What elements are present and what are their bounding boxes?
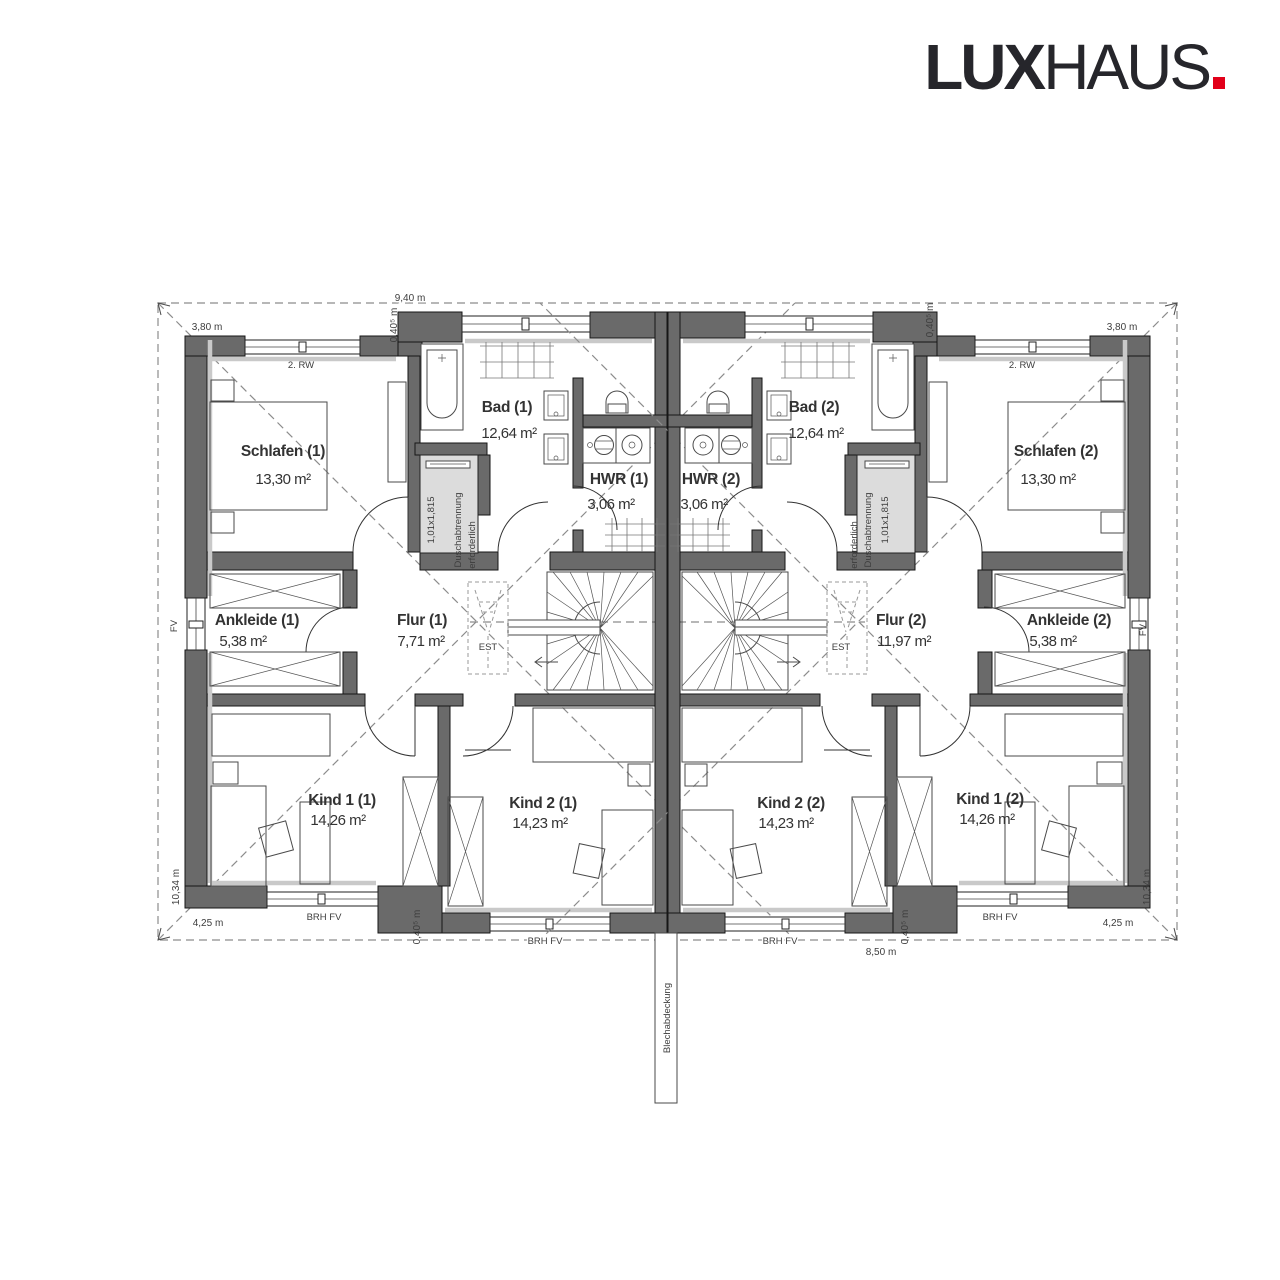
floor-plan-page: LUXHAUS [0, 0, 1280, 1280]
bath-tiles-icon [480, 342, 554, 378]
room-area-schlafen-2: 13,30 m² [1020, 471, 1076, 488]
note-est-left: EST [479, 642, 498, 653]
room-area-schlafen-1: 13,30 m² [255, 471, 311, 488]
room-area-kind-1-2: 14,26 m² [959, 811, 1015, 828]
room-area-hwr-1: 3,06 m² [587, 496, 635, 513]
room-name-bad-2: Bad (2) [789, 399, 840, 416]
note-fv-left: FV [169, 619, 180, 632]
shower-note-2-right: erforderlich [849, 521, 860, 569]
sink-icon [544, 391, 568, 464]
note-fv-right: FV [1138, 623, 1149, 636]
room-name-hwr-1: HWR (1) [590, 471, 648, 488]
room-area-kind-2-2: 14,23 m² [758, 815, 814, 832]
dim-side-depth-left: 10,34 m [171, 869, 182, 905]
room-name-ankleide-1: Ankleide (1) [215, 612, 299, 629]
dim-total-width-top: 9,40 m [395, 293, 426, 304]
toilet-icon [606, 391, 628, 413]
shower-note-1-left: Duschabtrennung [453, 493, 464, 568]
room-area-hwr-2: 3,06 m² [680, 496, 728, 513]
washer-dryer-icon [583, 428, 650, 463]
dim-offset-top-left: 0,40⁵ m [389, 308, 400, 343]
shower-size-right: 1,01x1,815 [880, 496, 891, 543]
room-area-bad-2: 12,64 m² [788, 425, 844, 442]
shower-note-1-right: Duschabtrennung [863, 493, 874, 568]
room-name-hwr-2: HWR (2) [682, 471, 740, 488]
dim-wing-bottom-right: 4,25 m [1103, 918, 1134, 929]
room-area-kind-1-1: 14,26 m² [310, 812, 366, 829]
room-name-kind-2-1: Kind 2 (1) [509, 795, 577, 812]
room-area-kind-2-1: 14,23 m² [512, 815, 568, 832]
room-area-ankleide-1: 5,38 m² [219, 633, 267, 650]
room-area-flur-1: 7,71 m² [397, 633, 445, 650]
wardrobe-ankleide [210, 574, 340, 686]
room-name-bad-1: Bad (1) [482, 399, 533, 416]
room-name-flur-2: Flur (2) [876, 612, 926, 629]
room-name-kind-1-2: Kind 1 (2) [956, 791, 1024, 808]
dim-wing-bottom-left: 4,25 m [193, 918, 224, 929]
dim-wing-width-left: 3,80 m [192, 322, 223, 333]
room-area-ankleide-2: 5,38 m² [1029, 633, 1077, 650]
room-area-bad-1: 12,64 m² [481, 425, 537, 442]
room-name-kind-2-2: Kind 2 (2) [757, 795, 825, 812]
note-brh-fv-3: BRH FV [763, 936, 799, 947]
dim-side-depth-right: 10,34 m [1142, 869, 1153, 905]
room-area-flur-2: 11,97 m² [877, 633, 932, 650]
note-rw-right: 2. RW [1009, 360, 1035, 371]
sheet-metal-label: Blechabdeckung [662, 983, 673, 1053]
room-name-schlafen-2: Schlafen (2) [1014, 443, 1098, 460]
room-name-kind-1-1: Kind 1 (1) [308, 792, 376, 809]
note-est-right: EST [832, 642, 851, 653]
dim-offset-bottom-right: 0,40⁵ m [900, 910, 911, 945]
dim-offset-bottom-left: 0,40⁵ m [412, 910, 423, 945]
room-name-flur-1: Flur (1) [397, 612, 447, 629]
dim-offset-top-right: 0,40⁵ m [925, 303, 936, 338]
dim-wing-width-right: 3,80 m [1107, 322, 1138, 333]
note-brh-fv-4: BRH FV [983, 912, 1019, 923]
shower-note-2-left: erforderlich [467, 521, 478, 569]
staircase [508, 572, 653, 690]
room-name-ankleide-2: Ankleide (2) [1027, 612, 1111, 629]
room-name-schlafen-1: Schlafen (1) [241, 443, 325, 460]
note-brh-fv-2: BRH FV [528, 936, 564, 947]
bathtub-icon [421, 344, 463, 430]
shower-size-left: 1,01x1,815 [426, 496, 437, 543]
floor-plan-drawing: Blechabdeckung Schlafen (1) 13,30 m² Bad… [0, 0, 1280, 1280]
note-brh-fv-1: BRH FV [307, 912, 343, 923]
sheet-metal-strip: Blechabdeckung [655, 933, 677, 1103]
dim-center-bottom: 8,50 m [866, 947, 897, 958]
note-rw-left: 2. RW [288, 360, 314, 371]
